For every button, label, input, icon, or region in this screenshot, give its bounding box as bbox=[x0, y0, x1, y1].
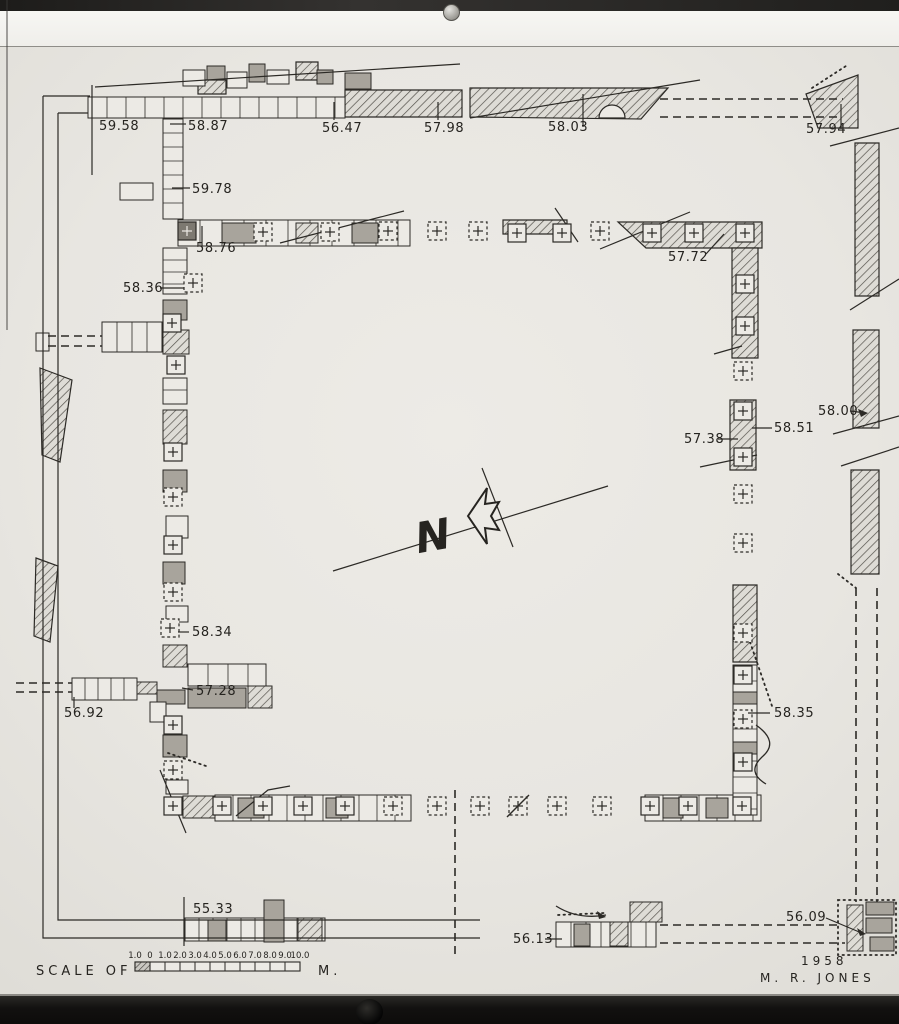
masonry-block bbox=[267, 70, 289, 84]
masonry-block bbox=[706, 798, 728, 818]
masonry-block bbox=[188, 664, 266, 686]
masonry-block bbox=[137, 682, 157, 694]
masonry-block bbox=[248, 686, 272, 708]
hatched-wall bbox=[732, 248, 758, 358]
north-letter: N bbox=[411, 509, 454, 563]
site-plan-drawing: 59.5858.8756.4757.9858.0357.9459.7858.76… bbox=[0, 0, 899, 1024]
masonry-block bbox=[733, 692, 757, 704]
masonry-block bbox=[610, 922, 628, 946]
scale-tick-label: 0 bbox=[147, 951, 152, 961]
elevation-label: 56.09 bbox=[786, 910, 826, 925]
masonry-block bbox=[163, 735, 187, 757]
masonry-block bbox=[574, 924, 590, 946]
scale-tick-label: 10.0 bbox=[291, 951, 310, 961]
pier-grid bbox=[161, 222, 754, 817]
elevation-label: 56.13 bbox=[513, 932, 553, 947]
hatched-wall bbox=[851, 470, 879, 574]
hatched-wall bbox=[34, 558, 58, 642]
masonry-block bbox=[866, 902, 894, 915]
elevation-label: 55.33 bbox=[193, 902, 233, 917]
masonry-block bbox=[733, 742, 757, 754]
elevation-label: 57.28 bbox=[196, 684, 236, 699]
survey-line bbox=[841, 447, 899, 466]
masonry-block bbox=[870, 937, 894, 951]
scale-tick-label: 2.0 bbox=[173, 951, 187, 961]
north-arrow: N bbox=[411, 488, 499, 563]
masonry-block bbox=[352, 223, 378, 243]
elevation-label: 58.00 bbox=[818, 404, 858, 419]
elevation-label: 59.58 bbox=[99, 119, 139, 134]
hatched-wall bbox=[806, 75, 858, 128]
masonry-block bbox=[183, 796, 215, 818]
elevation-label: 59.78 bbox=[192, 182, 232, 197]
hatched-wall bbox=[855, 143, 879, 296]
elevation-label: 58.34 bbox=[192, 625, 232, 640]
scale-tick-label: 1.0 bbox=[128, 951, 142, 961]
masonry-block bbox=[222, 223, 256, 243]
masonry-block bbox=[72, 678, 137, 700]
masonry-block bbox=[120, 183, 153, 200]
elevation-label: 58.03 bbox=[548, 120, 588, 135]
masonry-block bbox=[345, 73, 371, 89]
hatched-wall bbox=[345, 90, 462, 117]
scale-bar-first-segment bbox=[135, 962, 150, 971]
masonry-block bbox=[183, 70, 205, 86]
elevation-label: 56.47 bbox=[322, 121, 362, 136]
scale-tick-label: 1.0 bbox=[158, 951, 172, 961]
scale-unit: M. bbox=[318, 964, 341, 979]
year-label: 1958 bbox=[801, 954, 848, 968]
elevation-label: 58.76 bbox=[196, 241, 236, 256]
scale-tick-label: 7.0 bbox=[248, 951, 262, 961]
elevation-label: 57.98 bbox=[424, 121, 464, 136]
elevation-label: 56.92 bbox=[64, 706, 104, 721]
elevation-label: 57.94 bbox=[806, 122, 846, 137]
elevation-label: 57.38 bbox=[684, 432, 724, 447]
masonry-block bbox=[163, 645, 187, 667]
scale-tick-label: 3.0 bbox=[188, 951, 202, 961]
scale-tick-label: 8.0 bbox=[263, 951, 277, 961]
hatched-wall bbox=[40, 368, 72, 462]
masonry-block bbox=[296, 223, 318, 243]
photo-bottom-edge bbox=[0, 994, 899, 1024]
masonry-block bbox=[163, 378, 187, 404]
author-label: M. R. JONES bbox=[760, 971, 875, 985]
elevation-label: 57.72 bbox=[668, 250, 708, 265]
masonry-block bbox=[227, 72, 247, 88]
title-block: 1958 M. R. JONES bbox=[760, 954, 875, 985]
dotted-line bbox=[558, 913, 604, 915]
dotted-line bbox=[838, 574, 856, 588]
masonry-block bbox=[166, 516, 188, 538]
masonry-block bbox=[264, 900, 284, 942]
photo-dark-blob bbox=[356, 999, 383, 1024]
elevation-label: 58.35 bbox=[774, 706, 814, 721]
masonry-block bbox=[733, 665, 757, 815]
hatched-wall bbox=[296, 62, 318, 80]
north-arrow-icon bbox=[468, 488, 499, 544]
scale-tick-label: 5.0 bbox=[218, 951, 232, 961]
scale-bar: SCALE OF M. 1.001.02.03.04.05.06.07.08.0… bbox=[36, 951, 341, 979]
photograph-of-site-plan: 59.5858.8756.4757.9858.0357.9459.7858.76… bbox=[0, 0, 899, 1024]
masonry-block bbox=[88, 97, 345, 118]
elevation-label: 58.36 bbox=[123, 281, 163, 296]
elevation-label: 58.51 bbox=[774, 421, 814, 436]
masonry-block bbox=[163, 410, 187, 444]
masonry-block bbox=[630, 902, 662, 922]
masonry-block bbox=[207, 66, 225, 80]
scale-tick-label: 4.0 bbox=[203, 951, 217, 961]
masonry-layer bbox=[36, 64, 894, 951]
survey-line bbox=[333, 486, 608, 571]
masonry-block bbox=[249, 64, 265, 82]
masonry-block bbox=[163, 330, 189, 354]
scale-caption: SCALE OF bbox=[36, 964, 132, 979]
masonry-block bbox=[163, 119, 183, 219]
scale-tick-label: 6.0 bbox=[233, 951, 247, 961]
masonry-block bbox=[163, 562, 185, 584]
scale-bar-body bbox=[135, 962, 300, 971]
hatched-wall bbox=[470, 88, 668, 119]
elevation-label: 58.87 bbox=[188, 119, 228, 134]
masonry-block bbox=[866, 918, 892, 933]
